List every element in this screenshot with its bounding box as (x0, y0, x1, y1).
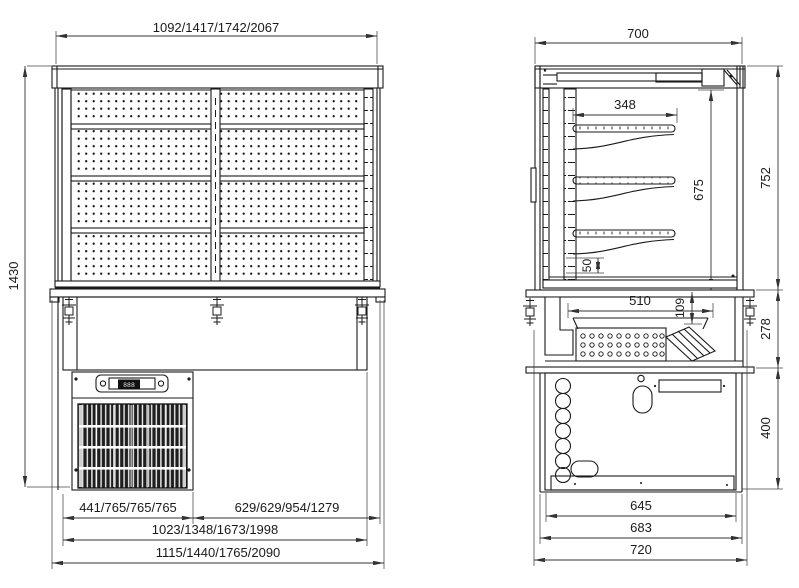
front-view: 1092/1417/1742/2067 1430 (6, 20, 385, 569)
shelf-3 (573, 230, 675, 254)
dim-front-width-label: 1092/1417/1742/2067 (153, 20, 280, 35)
dim-bracket-step-label: 50 (580, 259, 594, 273)
side-height-dimensions: 752 278 400 (742, 66, 783, 489)
front-height-dimension: 1430 (6, 66, 70, 487)
cabinet-oval-cutout (633, 386, 652, 413)
front-cooling-unit: 888 (72, 372, 193, 490)
side-interior-height-dimension: 675 (691, 90, 724, 290)
side-view: 700 (523, 26, 783, 566)
side-lower-cabinet (540, 373, 742, 492)
side-bottom-dimensions: 645 683 720 (534, 330, 747, 566)
dim-front-height-label: 1430 (6, 262, 21, 291)
dim-base-width-label: 645 (630, 498, 652, 513)
dim-upper-height-label: 752 (758, 167, 773, 189)
dim-cooling-unit-width-label: 441/765/765/765 (79, 500, 177, 515)
front-left-support-column (62, 89, 71, 283)
dim-overall-width-label: 1115/1440/1765/2090 (156, 545, 281, 560)
shelf-1 (573, 125, 675, 149)
dim-well-width-label: 510 (629, 293, 651, 308)
dim-counter-height-label: 278 (758, 318, 773, 340)
dim-interior-height-label: 675 (691, 179, 706, 201)
dim-shelf-depth-label: 348 (614, 97, 636, 112)
front-top-dimension: 1092/1417/1742/2067 (56, 20, 377, 64)
well-perforated-plate (576, 328, 666, 361)
dim-inner-width-label: 1023/1348/1673/1998 (152, 522, 279, 537)
side-top-dimension: 700 (535, 26, 742, 64)
front-mounting-clamps (62, 297, 369, 325)
front-center-divider (211, 89, 220, 283)
side-shelves (573, 125, 675, 254)
front-perforated-back-panels (55, 89, 380, 288)
side-canopy (535, 66, 745, 88)
cabinet-cable-holes (556, 379, 571, 483)
dim-frame-width-label: 683 (630, 520, 652, 535)
cabinet-obround-cutout (571, 461, 598, 477)
dim-overall-depth-label: 720 (630, 542, 652, 557)
cabinet-vent-panel (654, 380, 725, 392)
dim-right-section-width-label: 629/629/954/1279 (235, 500, 340, 515)
dim-base-height-label: 400 (758, 417, 773, 439)
front-right-support-column (364, 89, 373, 283)
well-fan-unit (666, 327, 715, 361)
temperature-controller: 888 (96, 375, 168, 392)
dim-well-depth-label: 109 (673, 298, 687, 318)
dim-depth-label: 700 (627, 26, 649, 41)
technical-drawing: 1092/1417/1742/2067 1430 (0, 0, 799, 588)
side-shelf-depth-dimension: 348 (573, 97, 677, 123)
side-well-section: 510 109 (545, 292, 743, 367)
front-canopy (52, 66, 383, 88)
controller-display-value: 888 (123, 382, 135, 389)
ventilation-grille (78, 404, 187, 488)
side-handle (531, 168, 536, 202)
side-base-band (526, 367, 754, 373)
shelf-2 (573, 177, 675, 201)
